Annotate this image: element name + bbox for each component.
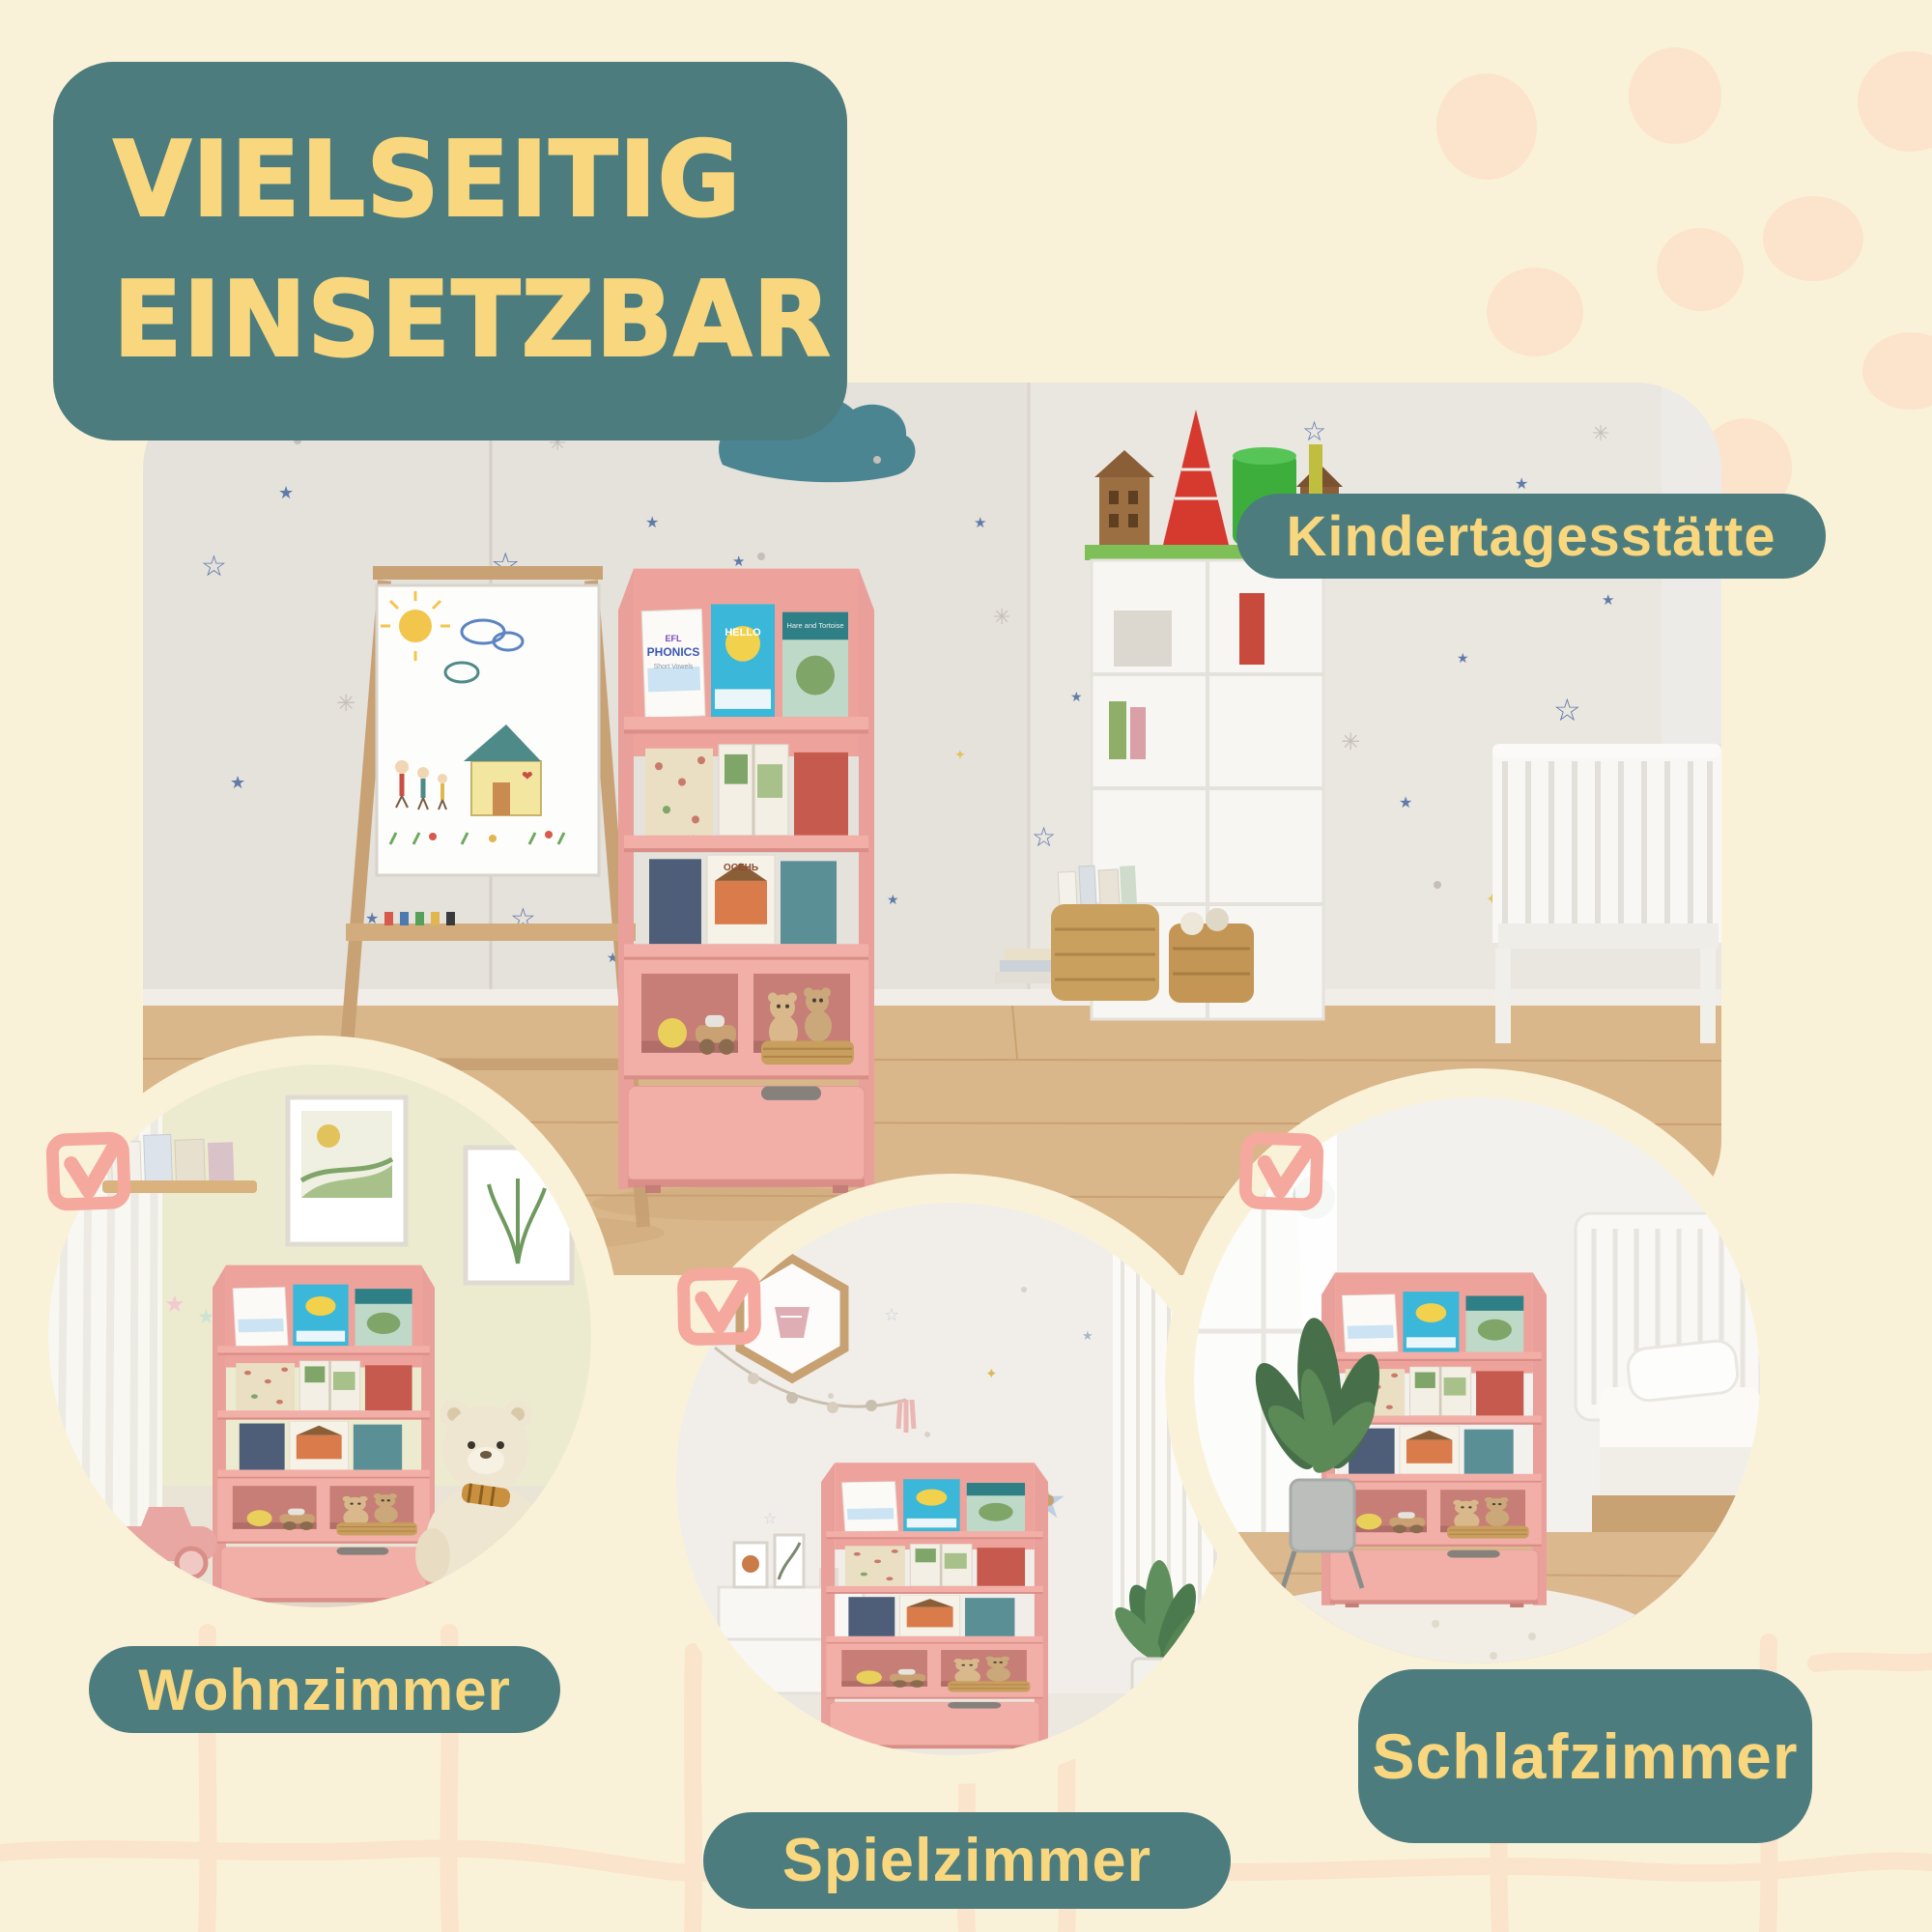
book-title-hello: HELLO bbox=[724, 627, 761, 639]
marker-tray bbox=[346, 923, 636, 941]
book-title-phonics: PHONICS bbox=[647, 645, 700, 659]
svg-text:☆: ☆ bbox=[1302, 415, 1326, 447]
svg-text:★: ★ bbox=[1082, 1329, 1094, 1344]
book-title-osen: ОСЕНЬ bbox=[724, 863, 758, 873]
badge-spielzimmer-label: Spielzimmer bbox=[782, 1826, 1151, 1895]
svg-text:★: ★ bbox=[230, 773, 245, 793]
svg-text:✦: ✦ bbox=[985, 1365, 998, 1382]
svg-text:★: ★ bbox=[1515, 474, 1528, 493]
bed-base bbox=[1592, 1495, 1760, 1538]
svg-text:☆: ☆ bbox=[201, 550, 227, 583]
checkbox-checked-icon bbox=[672, 1261, 765, 1351]
bed bbox=[1576, 1213, 1760, 1571]
badge-schlafzimmer: Schlafzimmer bbox=[1358, 1669, 1812, 1843]
book-title-melody: Melody bbox=[728, 640, 757, 650]
svg-text:★: ★ bbox=[278, 483, 294, 503]
book-subtitle: Short Vowels bbox=[654, 664, 694, 670]
poster-landscape bbox=[288, 1097, 406, 1244]
svg-text:★: ★ bbox=[1070, 690, 1083, 705]
checkbox-checked-icon bbox=[1234, 1124, 1327, 1216]
svg-text:★: ★ bbox=[1399, 793, 1412, 811]
checkbox-checked-icon bbox=[41, 1124, 134, 1216]
svg-text:★: ★ bbox=[974, 514, 986, 531]
svg-text:☆: ☆ bbox=[884, 1305, 899, 1325]
svg-text:★: ★ bbox=[732, 553, 745, 570]
svg-text:★: ★ bbox=[645, 513, 659, 531]
svg-text:✳: ✳ bbox=[1341, 728, 1360, 755]
svg-text:★: ★ bbox=[887, 893, 899, 908]
badge-wohnzimmer: Wohnzimmer bbox=[89, 1646, 560, 1733]
svg-text:❤: ❤ bbox=[522, 769, 533, 784]
svg-text:✳: ✳ bbox=[1592, 422, 1609, 446]
svg-text:✳: ✳ bbox=[993, 606, 1010, 630]
baseboard bbox=[143, 989, 1721, 1007]
svg-text:☆: ☆ bbox=[1032, 821, 1056, 853]
svg-text:☆: ☆ bbox=[1553, 692, 1581, 728]
title-card: VIELSEITIG EINSETZBAR bbox=[53, 62, 847, 440]
book-title-hare: Hare and Tortoise bbox=[786, 621, 843, 630]
badge-spielzimmer: Spielzimmer bbox=[703, 1812, 1231, 1909]
title-line-2: EINSETZBAR bbox=[113, 251, 825, 391]
svg-text:✦: ✦ bbox=[954, 748, 966, 763]
book-publisher: EFL bbox=[666, 634, 683, 643]
svg-text:✳: ✳ bbox=[336, 690, 355, 717]
title-line-1: VIELSEITIG bbox=[113, 111, 825, 251]
red-tube-toy bbox=[1239, 593, 1264, 665]
svg-text:★: ★ bbox=[1457, 651, 1469, 667]
svg-text:★: ★ bbox=[1602, 591, 1614, 609]
svg-text:☆: ☆ bbox=[763, 1509, 777, 1527]
badge-schlafzimmer-label: Schlafzimmer bbox=[1372, 1719, 1798, 1793]
svg-text:★: ★ bbox=[164, 1291, 185, 1318]
badge-wohnzimmer-label: Wohnzimmer bbox=[138, 1657, 511, 1723]
pillow bbox=[1626, 1339, 1739, 1402]
badge-kindertagesstaette: Kindertagesstätte bbox=[1236, 494, 1826, 579]
badge-kindertagesstaette-label: Kindertagesstätte bbox=[1287, 504, 1776, 569]
blanket bbox=[1600, 1447, 1760, 1495]
